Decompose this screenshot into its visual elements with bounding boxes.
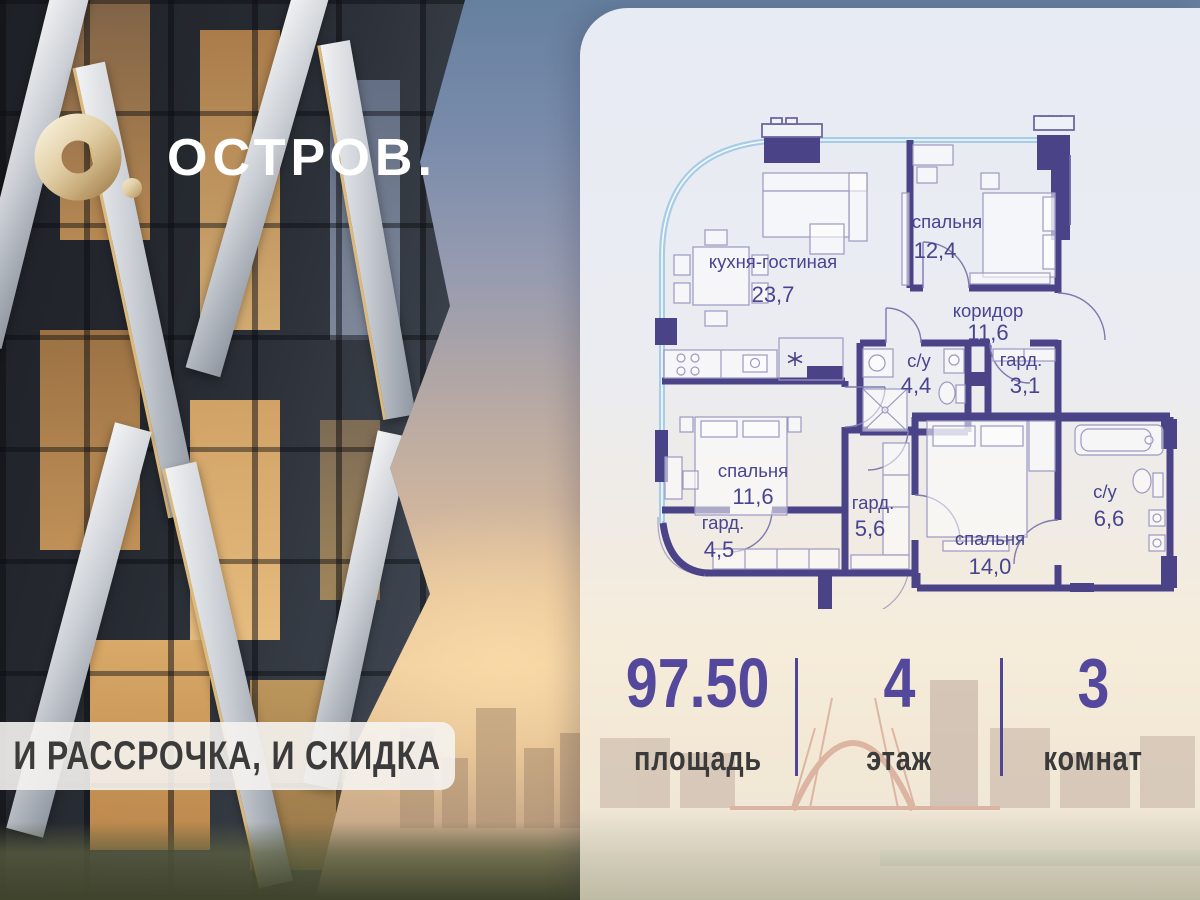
- room-area: 6,6: [1094, 506, 1125, 531]
- stat-rooms-value: 3: [1078, 648, 1110, 718]
- room-name: с/у: [1093, 481, 1117, 502]
- room-name: коридор: [953, 300, 1024, 321]
- room-area: 5,6: [855, 516, 886, 541]
- promo-banner: И РАССРОЧКА, И СКИДКА: [0, 722, 455, 790]
- stat-floor: 4 этаж: [798, 648, 1000, 808]
- room-name: кухня-гостиная: [709, 251, 837, 272]
- brand-name: ОСТРОВ.: [167, 128, 437, 188]
- stat-area: 97.50 площадь: [600, 648, 795, 808]
- apartment-stats: 97.50 площадь 4 этаж 3 комнат: [600, 648, 1184, 808]
- room-name: спальня: [718, 460, 788, 481]
- vent-icon: [788, 352, 802, 366]
- room-name: гард.: [702, 512, 744, 533]
- brand-ring-icon: [28, 100, 153, 215]
- brand-logo: ОСТРОВ.: [28, 100, 437, 215]
- stat-rooms-label: комнат: [1044, 740, 1143, 779]
- stat-area-value: 97.50: [626, 648, 770, 718]
- stat-rooms: 3 комнат: [1003, 648, 1184, 808]
- room-name: с/у: [907, 350, 931, 371]
- promo-text: И РАССРОЧКА, И СКИДКА: [14, 734, 441, 779]
- room-area: 12,4: [914, 238, 957, 263]
- faint-trees: [580, 808, 1200, 900]
- room-area: 14,0: [969, 554, 1012, 579]
- trees: [0, 822, 590, 900]
- floor-plan: кухня-гостиная 23,7 спальня 12,4 коридор…: [655, 115, 1177, 609]
- ad-creative: ОСТРОВ. И РАССРОЧКА, И СКИДКА: [0, 0, 1200, 900]
- room-area: 11,6: [732, 484, 773, 509]
- stat-area-label: площадь: [634, 740, 762, 779]
- room-name: гард.: [852, 492, 894, 513]
- room-name: гард.: [1000, 349, 1042, 370]
- room-name: спальня: [912, 211, 982, 232]
- stat-floor-label: этаж: [866, 740, 932, 779]
- room-area: 3,1: [1010, 373, 1041, 398]
- room-area: 4,4: [901, 373, 932, 398]
- room-area: 23,7: [752, 282, 795, 307]
- room-area: 4,5: [704, 537, 735, 562]
- room-name: спальня: [955, 528, 1025, 549]
- stat-floor-value: 4: [883, 648, 915, 718]
- room-area: 11,6: [967, 320, 1008, 345]
